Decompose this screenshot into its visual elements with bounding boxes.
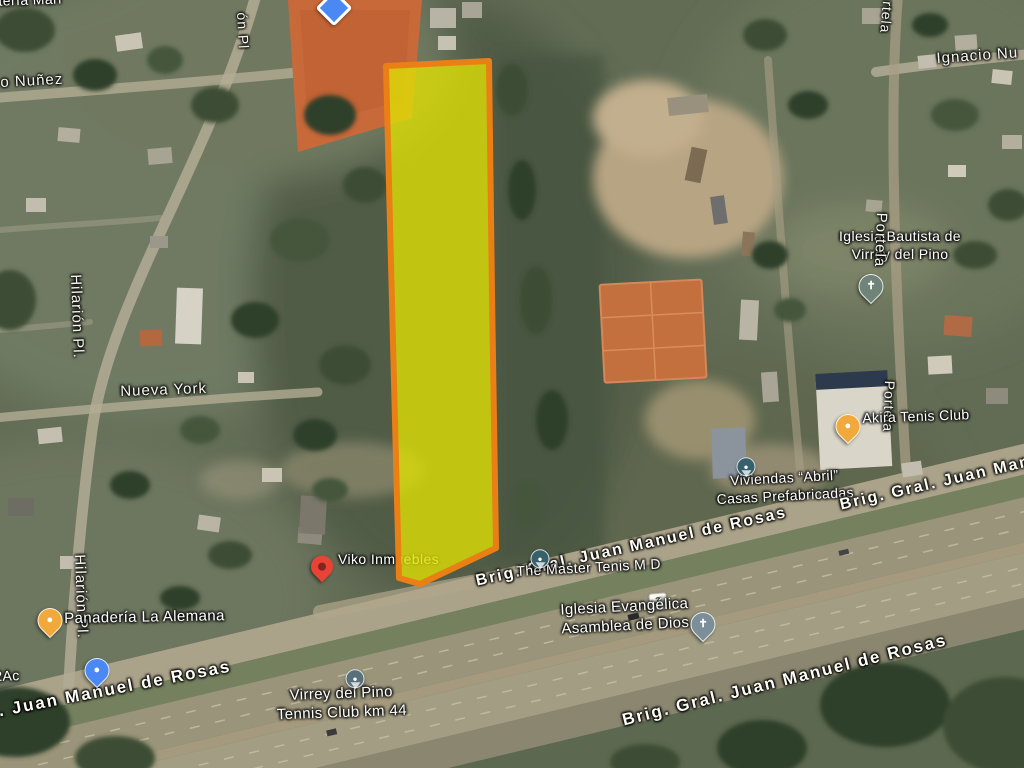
viviendas-pin-icon: ● <box>737 457 756 476</box>
top-diamond-pin-icon <box>316 0 353 26</box>
map-canvas: Viko Inmuebles 3 etería Mario Nuñezón Pl… <box>0 0 1024 768</box>
akira-tenis-pin[interactable]: ● <box>836 414 861 439</box>
iglesia-bautista-church-pin-glyph: ✝ <box>866 281 875 292</box>
iglesia-bautista-church-pin-icon: ✝ <box>853 269 888 304</box>
master-tenis-pin-glyph: ● <box>538 555 543 563</box>
top-diamond-pin[interactable] <box>321 0 347 21</box>
master-tenis-pin-icon: ● <box>531 549 550 568</box>
master-tenis-pin[interactable]: ● <box>531 549 550 568</box>
viviendas-pin-glyph: ● <box>744 463 749 471</box>
iglesia-evangelica-church-pin[interactable]: ✝ <box>691 612 716 637</box>
panaderia-bakery-pin-glyph: ● <box>47 615 54 626</box>
shop-blue-pin-glyph: ● <box>94 665 101 676</box>
viviendas-pin[interactable]: ● <box>737 457 756 476</box>
shop-blue-pin[interactable]: ● <box>85 658 110 683</box>
virrey-tennis-pin[interactable]: ● <box>346 669 365 688</box>
viko-red-location-pin-icon <box>306 551 337 582</box>
iglesia-bautista-church-pin[interactable]: ✝ <box>859 274 884 299</box>
akira-tenis-pin-glyph: ● <box>845 421 852 432</box>
virrey-tennis-pin-glyph: ● <box>353 675 358 683</box>
panaderia-bakery-pin-icon: ● <box>32 603 67 638</box>
iglesia-evangelica-church-pin-glyph: ✝ <box>698 619 707 630</box>
virrey-tennis-pin-icon: ● <box>346 669 365 688</box>
pins-layer: ●●✝✝●●●● <box>0 0 1024 768</box>
iglesia-evangelica-church-pin-icon: ✝ <box>685 607 720 642</box>
viko-red-location-pin[interactable] <box>311 556 333 578</box>
akira-tenis-pin-icon: ● <box>830 409 865 444</box>
shop-blue-pin-icon: ● <box>79 653 114 688</box>
panaderia-bakery-pin[interactable]: ● <box>38 608 63 633</box>
viko-red-location-pin-dot <box>316 561 327 572</box>
